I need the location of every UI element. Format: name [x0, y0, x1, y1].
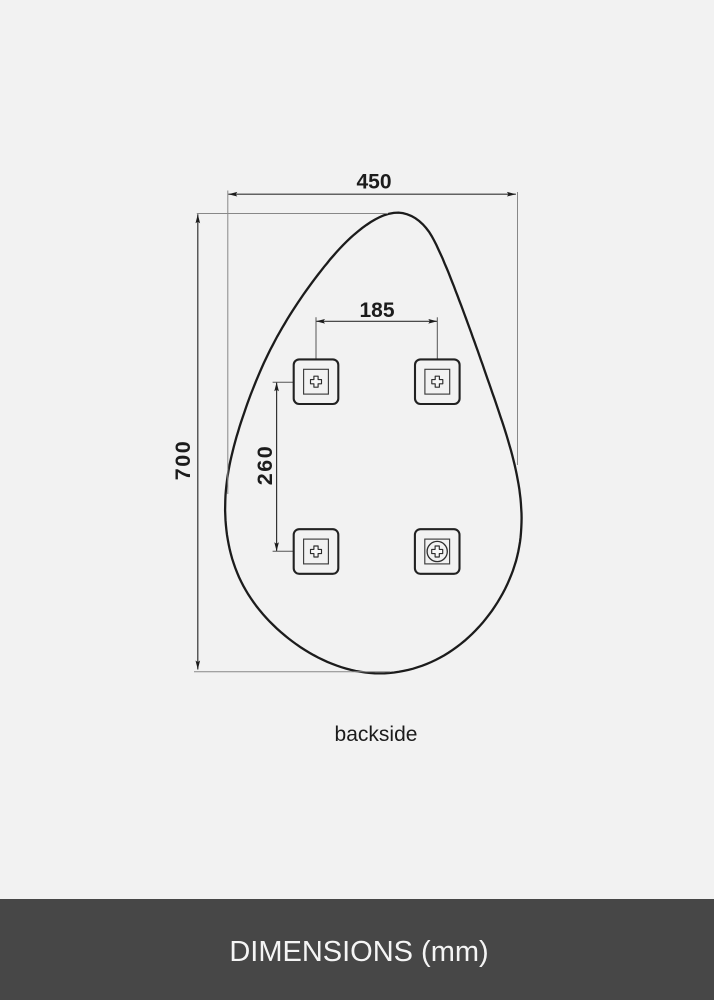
svg-text:450: 450 [356, 171, 391, 194]
svg-text:260: 260 [253, 445, 277, 485]
svg-text:185: 185 [359, 299, 394, 322]
svg-text:backside: backside [335, 723, 418, 746]
svg-text:700: 700 [171, 440, 195, 480]
svg-text:DIMENSIONS (mm): DIMENSIONS (mm) [229, 936, 488, 968]
